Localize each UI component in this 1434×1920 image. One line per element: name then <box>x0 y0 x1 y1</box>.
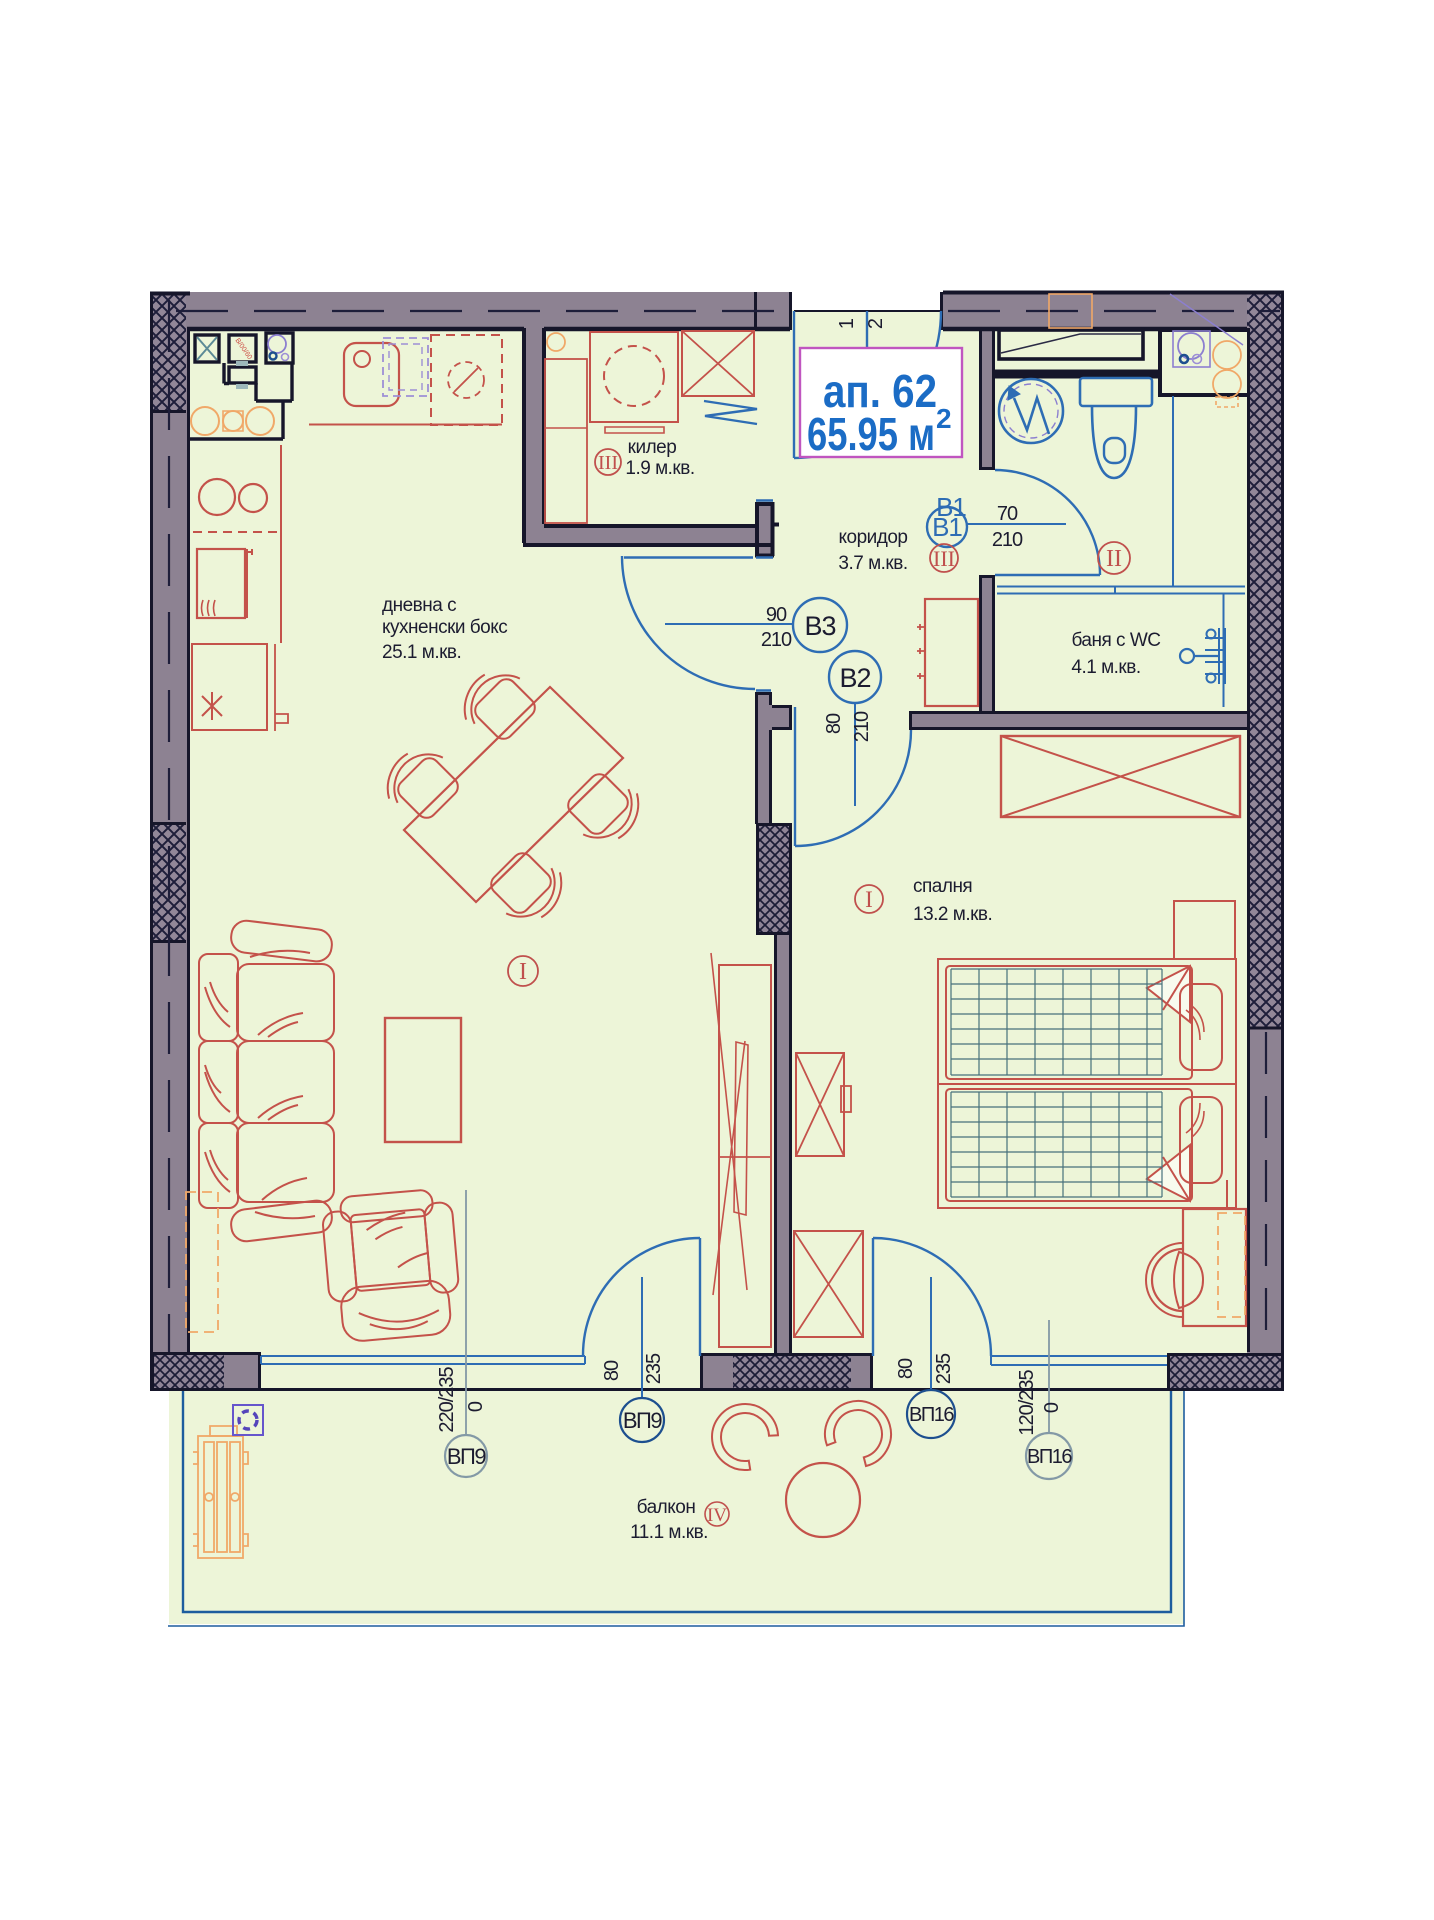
svg-text:210: 210 <box>992 529 1023 551</box>
svg-text:90: 90 <box>766 604 787 626</box>
svg-text:210: 210 <box>761 629 792 651</box>
svg-text:II: II <box>1106 546 1122 572</box>
svg-text:2: 2 <box>865 318 887 329</box>
svg-text:ВП9: ВП9 <box>447 1444 486 1469</box>
svg-text:1: 1 <box>836 318 858 329</box>
svg-text:IV: IV <box>707 1505 727 1526</box>
svg-text:I: I <box>865 887 873 912</box>
svg-text:70: 70 <box>997 503 1018 525</box>
svg-text:ВП9: ВП9 <box>623 1408 662 1433</box>
svg-text:80: 80 <box>601 1360 623 1381</box>
svg-text:коридор: коридор <box>839 527 908 548</box>
svg-text:0: 0 <box>465 1401 487 1412</box>
svg-text:В3: В3 <box>804 611 835 641</box>
svg-text:В1: В1 <box>932 512 962 542</box>
svg-text:килер: килер <box>628 437 677 458</box>
svg-text:баня с WC: баня с WC <box>1071 630 1160 651</box>
svg-text:25.1 м.кв.: 25.1 м.кв. <box>382 642 461 663</box>
svg-text:210: 210 <box>851 711 873 742</box>
svg-text:0: 0 <box>1041 1402 1063 1413</box>
svg-text:65.95 м: 65.95 м <box>807 408 935 460</box>
svg-text:220/235: 220/235 <box>436 1366 458 1432</box>
svg-text:235: 235 <box>933 1353 955 1384</box>
svg-text:80: 80 <box>823 713 845 734</box>
svg-text:80: 80 <box>895 1358 917 1379</box>
svg-text:11.1 м.кв.: 11.1 м.кв. <box>630 1522 708 1543</box>
svg-text:ВП16: ВП16 <box>909 1404 954 1426</box>
svg-text:235: 235 <box>643 1353 665 1384</box>
svg-text:В2: В2 <box>839 663 870 693</box>
svg-text:балкон: балкон <box>637 1497 696 1518</box>
svg-text:ВП16: ВП16 <box>1027 1446 1072 1468</box>
svg-text:I: I <box>519 959 527 985</box>
svg-text:2: 2 <box>936 403 952 434</box>
svg-text:3.7 м.кв.: 3.7 м.кв. <box>838 553 907 574</box>
svg-text:III: III <box>598 452 618 474</box>
svg-text:спалня: спалня <box>913 876 972 897</box>
svg-text:III: III <box>933 546 955 571</box>
svg-text:1.9 м.кв.: 1.9 м.кв. <box>625 458 694 479</box>
svg-text:кухненски бокс: кухненски бокс <box>382 617 507 638</box>
svg-text:120/235: 120/235 <box>1016 1369 1038 1435</box>
svg-text:4.1 м.кв.: 4.1 м.кв. <box>1071 657 1140 678</box>
svg-text:13.2 м.кв.: 13.2 м.кв. <box>913 904 992 925</box>
svg-text:дневна с: дневна с <box>382 595 456 616</box>
